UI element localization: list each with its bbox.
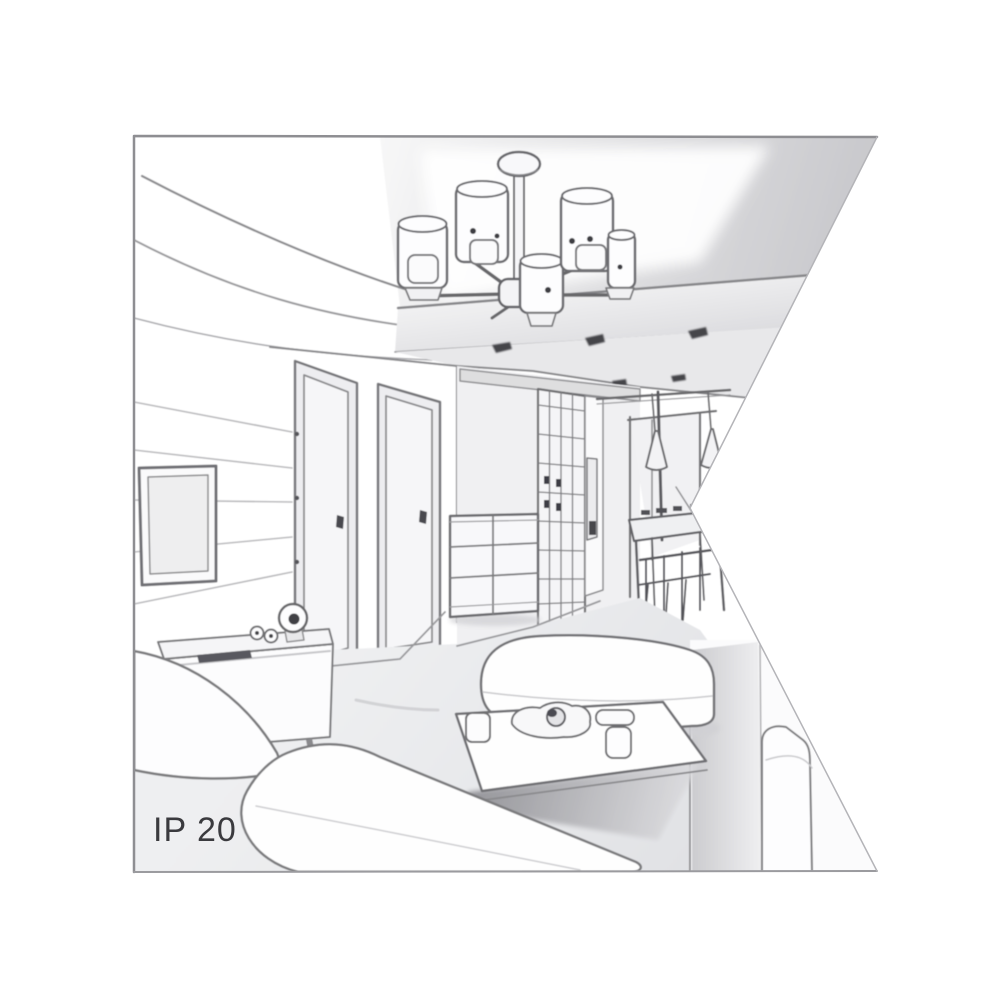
clock-face-detail [289,614,300,625]
cup [466,713,490,742]
door-right-handle [419,510,427,524]
frame-border-bottom [134,871,877,872]
sofa-right [690,640,877,871]
door-left-handle [336,515,344,529]
dish [596,710,634,725]
shade-cylinder [561,188,613,271]
hall-partition-dark-detail [589,521,596,535]
chest-of-drawers [449,514,541,626]
product-illustration-page: IP 20 [0,0,1000,1000]
shade-cylinder [456,181,508,264]
speaker-dot [255,631,259,635]
tv [139,466,216,585]
cup [606,727,631,758]
bowl-shadow-detail [547,709,557,717]
hinge-dot [295,496,299,500]
room-illustration: IP 20 [0,0,1000,1000]
ip-rating-label: IP 20 [153,811,237,849]
shade-cylinder [398,216,447,300]
chest-body [450,514,538,617]
doors [295,361,463,669]
hinge-dot [295,432,299,436]
sofa-right-armrest [762,726,812,871]
tv-screen [148,475,208,574]
speaker-dot [269,634,273,638]
shade-cylinder [606,230,635,299]
hinge-dot [295,560,299,564]
